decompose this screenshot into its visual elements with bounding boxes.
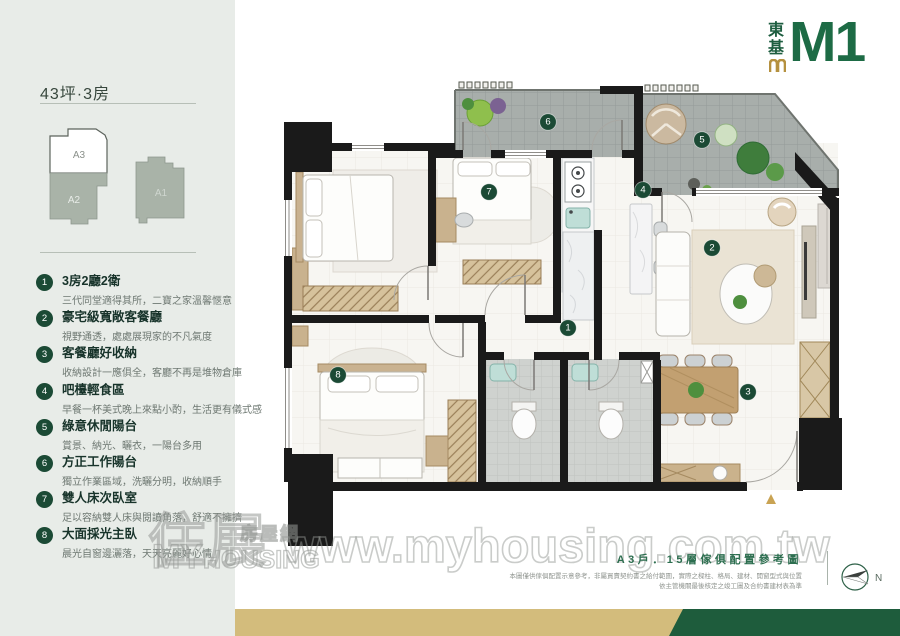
- feature-title: 綠意休閒陽台: [62, 419, 202, 433]
- feature-desc: 賞景、納光、曬衣，一陽台多用: [62, 437, 202, 452]
- pillow: [306, 179, 322, 216]
- compass-icon: N: [838, 560, 893, 594]
- plan-marker-1: 1: [560, 320, 577, 337]
- tv: [804, 242, 807, 300]
- feature-number-badge: 7: [36, 491, 53, 508]
- feature-title: 雙人床次臥室: [62, 491, 242, 505]
- desk: [436, 198, 456, 242]
- dresser: [292, 326, 308, 346]
- feature-item-8: 8 大面採光主臥 晨光自窗邊灑落，天天亮麗好心情: [36, 527, 232, 560]
- feature-title: 客餐廳好收納: [62, 346, 242, 360]
- entry-marker: [766, 494, 776, 504]
- pillow: [496, 162, 530, 176]
- pillow: [306, 220, 322, 257]
- unit-a1-label: A1: [155, 188, 168, 199]
- sofa: [656, 232, 690, 336]
- feature-title: 豪宅級寬敞客餐廳: [62, 310, 212, 324]
- feature-number-badge: 1: [36, 274, 53, 291]
- key-plan-diagram: A3 A2 A1: [0, 0, 235, 245]
- feature-desc: 三代同堂適得其所，二寶之家溫馨愜意: [62, 292, 232, 307]
- basin: [490, 364, 516, 381]
- toilet: [512, 409, 536, 439]
- plant: [733, 295, 747, 309]
- dining-chair: [712, 413, 732, 425]
- plan-marker-4: 4: [635, 182, 652, 199]
- round-table: [754, 265, 776, 287]
- feature-item-2: 2 豪宅級寬敞客餐廳 視野通透，處處展現家的不凡氣度: [36, 310, 232, 343]
- disclaimer-line-1: 本圖僅供傢俱配置示意參考，非屬買賣契約書之給付範圍，實際之樑柱、格局、建材、開窗…: [420, 570, 802, 580]
- feature-item-6: 6 方正工作陽台 獨立作業區域，洗曬分明，收納順手: [36, 455, 232, 488]
- feature-title: 3房2廳2衛: [62, 274, 232, 288]
- closet: [303, 286, 398, 311]
- toilet: [599, 409, 623, 439]
- dining-chair: [712, 355, 732, 367]
- plan-marker-6: 6: [540, 114, 557, 131]
- basin: [572, 364, 598, 381]
- svg-text:1: 1: [565, 323, 570, 334]
- stove: [565, 162, 591, 202]
- plan-marker-5: 5: [694, 132, 711, 149]
- brand-name-vertical: 東基: [768, 22, 787, 58]
- feature-number-badge: 4: [36, 383, 53, 400]
- sidebar: 43坪·3房 A3 A2 A1 1 3房2廳2衛 三代同堂適得其所，二寶之家溫馨…: [0, 0, 235, 636]
- feature-item-3: 3 客餐廳好收納 收納設計一應俱全，客廳不再是堆物倉庫: [36, 346, 232, 379]
- wardrobe: [463, 260, 541, 284]
- plan-marker-3: 3: [740, 384, 757, 401]
- feature-title: 吧檯輕食區: [62, 383, 262, 397]
- floor-plan: 1 2 3 4 5 6 7 8: [278, 80, 848, 560]
- footer-stripe-green: [669, 609, 900, 636]
- caption-divider: [827, 551, 828, 585]
- svg-text:7: 7: [486, 187, 491, 198]
- feature-title: 大面採光主臥: [62, 527, 212, 541]
- svg-text:3: 3: [745, 387, 750, 398]
- feature-number-badge: 3: [36, 346, 53, 363]
- feature-desc: 收納設計一應俱全，客廳不再是堆物倉庫: [62, 364, 242, 379]
- lounge-chair: [768, 198, 796, 226]
- svg-text:6: 6: [545, 117, 550, 128]
- counter: [563, 232, 594, 320]
- svg-text:8: 8: [335, 370, 340, 381]
- feature-desc: 視野通透，處處展現家的不凡氣度: [62, 328, 212, 343]
- feature-item-7: 7 雙人床次臥室 足以容納雙人床與閱讀角落，舒適不擁擠: [36, 491, 232, 524]
- brochure-page: 43坪·3房 A3 A2 A1 1 3房2廳2衛 三代同堂適得其所，二寶之家溫馨…: [0, 0, 900, 636]
- brand-model-logo: M1: [789, 14, 864, 71]
- feature-number-badge: 8: [36, 527, 53, 544]
- feature-title: 方正工作陽台: [62, 455, 222, 469]
- headboard: [296, 172, 303, 262]
- divider-bottom: [40, 252, 196, 253]
- unit-a2-label: A2: [68, 195, 81, 206]
- svg-text:4: 4: [640, 185, 645, 196]
- plan-caption: A3戶．15層傢俱配置參考圖: [540, 551, 802, 567]
- dining-chair: [685, 413, 705, 425]
- feature-desc: 獨立作業區域，洗曬分明，收納順手: [62, 473, 222, 488]
- feature-desc: 晨光自窗邊灑落，天天亮麗好心情: [62, 545, 212, 560]
- robot-vacuum: [713, 466, 727, 480]
- plan-marker-2: 2: [704, 240, 721, 257]
- plan-marker-8: 8: [330, 367, 347, 384]
- disclaimer-line-2: 依主管機關最後核定之竣工圖及合約書建材表為準: [420, 580, 802, 590]
- feature-number-badge: 2: [36, 310, 53, 327]
- footer-stripe-gold: [235, 609, 685, 636]
- brand-mark-icon: [769, 59, 786, 72]
- chair: [455, 213, 473, 227]
- feature-desc: 足以容納雙人床與閱讀角落，舒適不擁擠: [62, 509, 242, 524]
- feature-item-4: 4 吧檯輕食區 早餐一杯美式晚上來點小酌，生活更有儀式感: [36, 383, 232, 416]
- storage-cabinet: [800, 342, 830, 418]
- pillow: [458, 162, 492, 176]
- compass-n-label: N: [875, 573, 882, 584]
- plant: [688, 382, 704, 398]
- desk: [426, 436, 448, 466]
- plan-marker-7: 7: [481, 184, 498, 201]
- feature-item-1: 1 3房2廳2衛 三代同堂適得其所，二寶之家溫馨愜意: [36, 274, 232, 307]
- unit-a3-label: A3: [73, 150, 86, 161]
- feature-number-badge: 5: [36, 419, 53, 436]
- svg-text:5: 5: [699, 135, 704, 146]
- feature-desc: 早餐一杯美式晚上來點小酌，生活更有儀式感: [62, 401, 262, 416]
- wardrobe: [448, 400, 476, 482]
- bar-island: [630, 204, 652, 294]
- feature-number-badge: 6: [36, 455, 53, 472]
- pillow: [376, 376, 418, 392]
- feature-item-5: 5 綠意休閒陽台 賞景、納光、曬衣，一陽台多用: [36, 419, 232, 452]
- kitchen: [562, 158, 594, 320]
- dining-chair: [685, 355, 705, 367]
- svg-text:2: 2: [709, 243, 714, 254]
